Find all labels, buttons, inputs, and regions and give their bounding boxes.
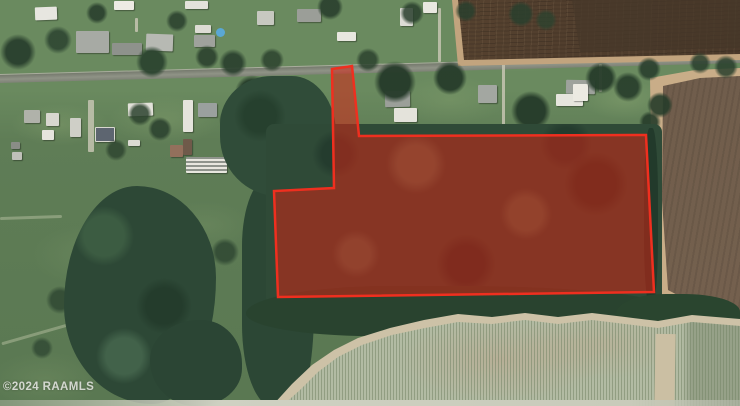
satellite-map: ©2024 RAAMLS (0, 0, 740, 406)
parcel-boundary-polygon (274, 66, 654, 297)
parcel-overlay (0, 0, 740, 406)
watermark: ©2024 RAAMLS (3, 381, 94, 393)
